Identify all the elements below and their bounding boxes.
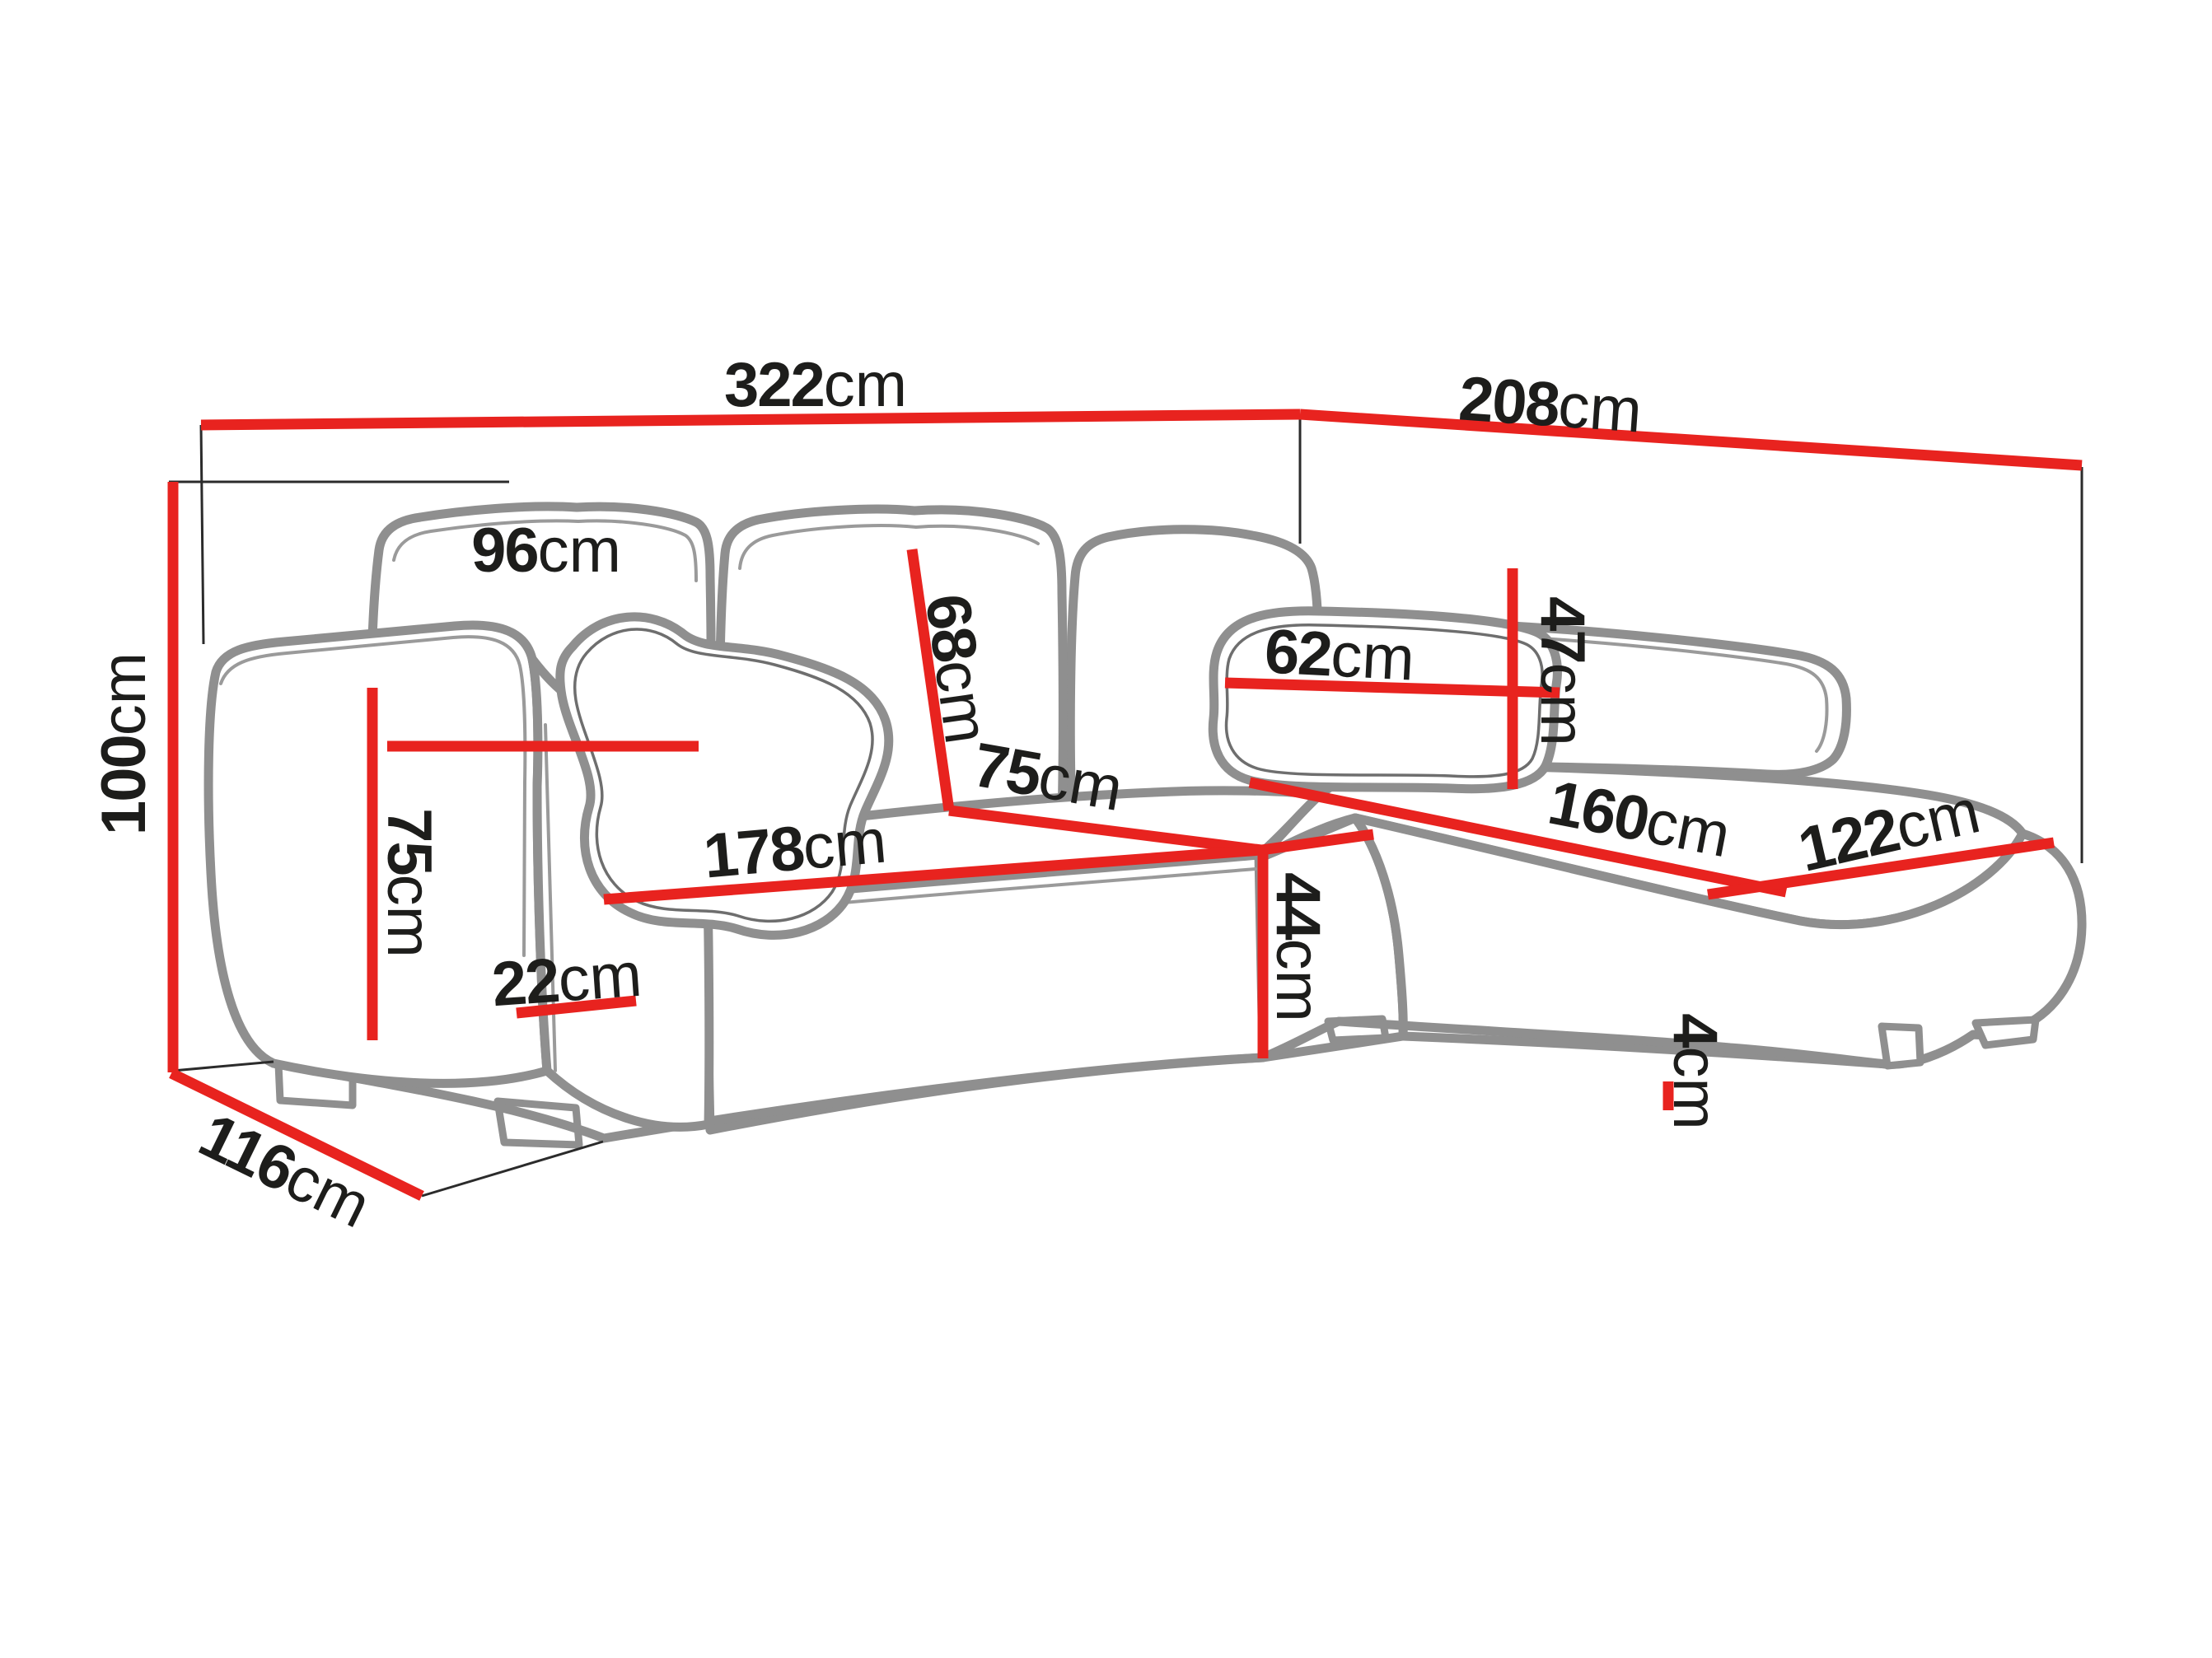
ref-line-depth-bottom [422, 1142, 603, 1196]
ref-line-depth-top [173, 1062, 274, 1071]
ref-line-top-left [201, 425, 203, 644]
label-armrest-width: 22cm [489, 939, 643, 1019]
label-pillow-height: 47cm [1528, 596, 1598, 746]
label-pillow-width: 62cm [1263, 616, 1416, 694]
label-total-height: 100cm [89, 652, 159, 835]
label-total-depth: 208cm [1457, 363, 1644, 446]
label-left-side-depth: 116cm [189, 1100, 381, 1241]
label-seat-height: 44cm [1264, 872, 1334, 1022]
sofa-foot-chaise-front [1976, 1020, 2036, 1045]
sofa-dimension-diagram: 322cm 208cm 100cm 116cm 96cm 68cm 75cm 1… [0, 0, 2212, 1658]
dim-line-total-depth [1300, 414, 2082, 465]
label-back-cushion-width: 96cm [471, 516, 621, 586]
label-leg-height: 4cm [1661, 1013, 1731, 1130]
label-total-width: 322cm [724, 350, 907, 420]
label-armrest-height: 75cm [375, 808, 445, 958]
